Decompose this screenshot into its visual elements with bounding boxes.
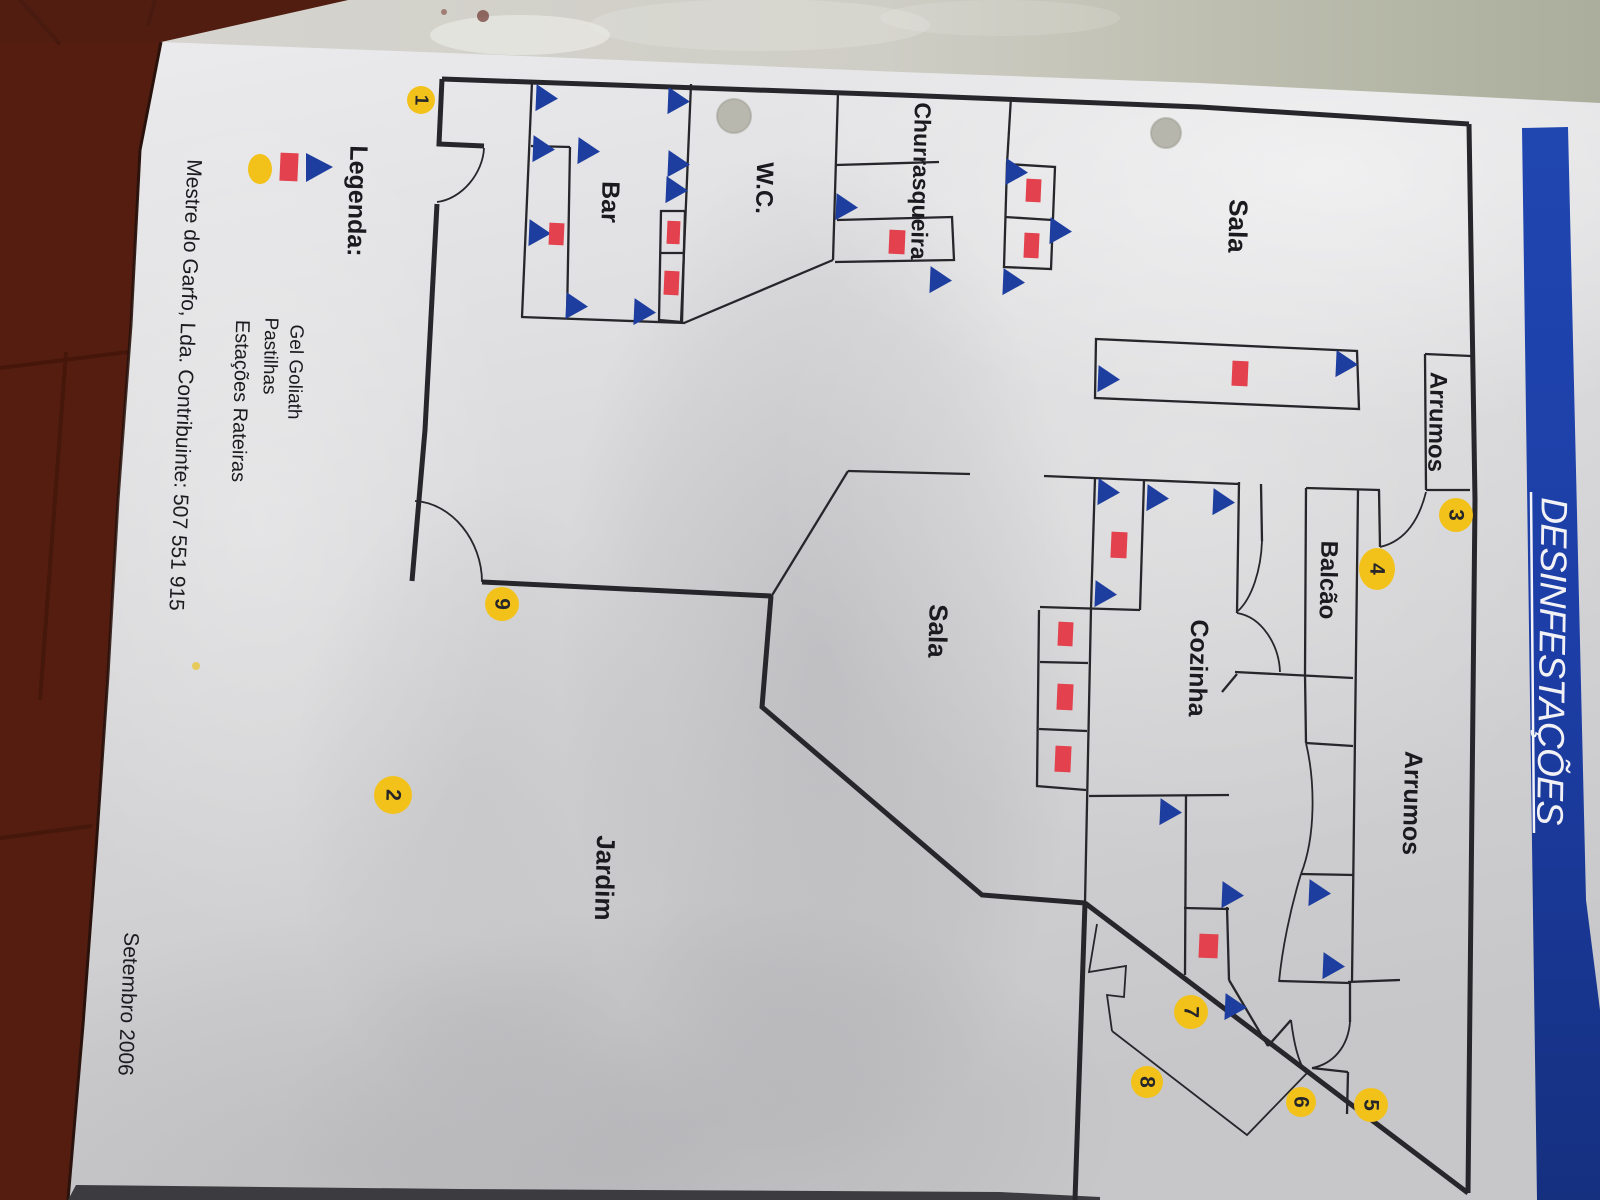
svg-text:Legenda:: Legenda: — [342, 145, 373, 257]
svg-text:2: 2 — [381, 789, 404, 801]
svg-text:Balcão: Balcão — [1313, 540, 1342, 619]
svg-text:Sala: Sala — [922, 604, 953, 659]
svg-text:Estações Rateiras: Estações Rateiras — [227, 320, 253, 483]
svg-text:Arrumos: Arrumos — [1397, 751, 1428, 856]
svg-text:Arrumos: Arrumos — [1422, 372, 1452, 473]
svg-text:Sala: Sala — [1222, 199, 1253, 254]
svg-text:Churrasqueira: Churrasqueira — [906, 102, 936, 260]
svg-text:DESINFESTAÇÕES: DESINFESTAÇÕES — [1529, 497, 1575, 826]
svg-text:4: 4 — [1365, 563, 1388, 576]
svg-text:7: 7 — [1179, 1006, 1202, 1018]
svg-text:Pastilhas: Pastilhas — [258, 317, 281, 395]
svg-text:8: 8 — [1135, 1076, 1158, 1089]
svg-text:1: 1 — [410, 94, 431, 106]
svg-text:5: 5 — [1359, 1099, 1382, 1112]
svg-text:Bar: Bar — [595, 181, 624, 224]
svg-text:Gel Goliath: Gel Goliath — [283, 324, 306, 420]
svg-text:3: 3 — [1444, 509, 1467, 521]
svg-text:Jardim: Jardim — [589, 835, 621, 921]
svg-text:9: 9 — [490, 598, 513, 610]
svg-text:W.C.: W.C. — [750, 162, 778, 215]
svg-text:Cozinha: Cozinha — [1183, 619, 1214, 718]
svg-text:6: 6 — [1289, 1096, 1312, 1108]
